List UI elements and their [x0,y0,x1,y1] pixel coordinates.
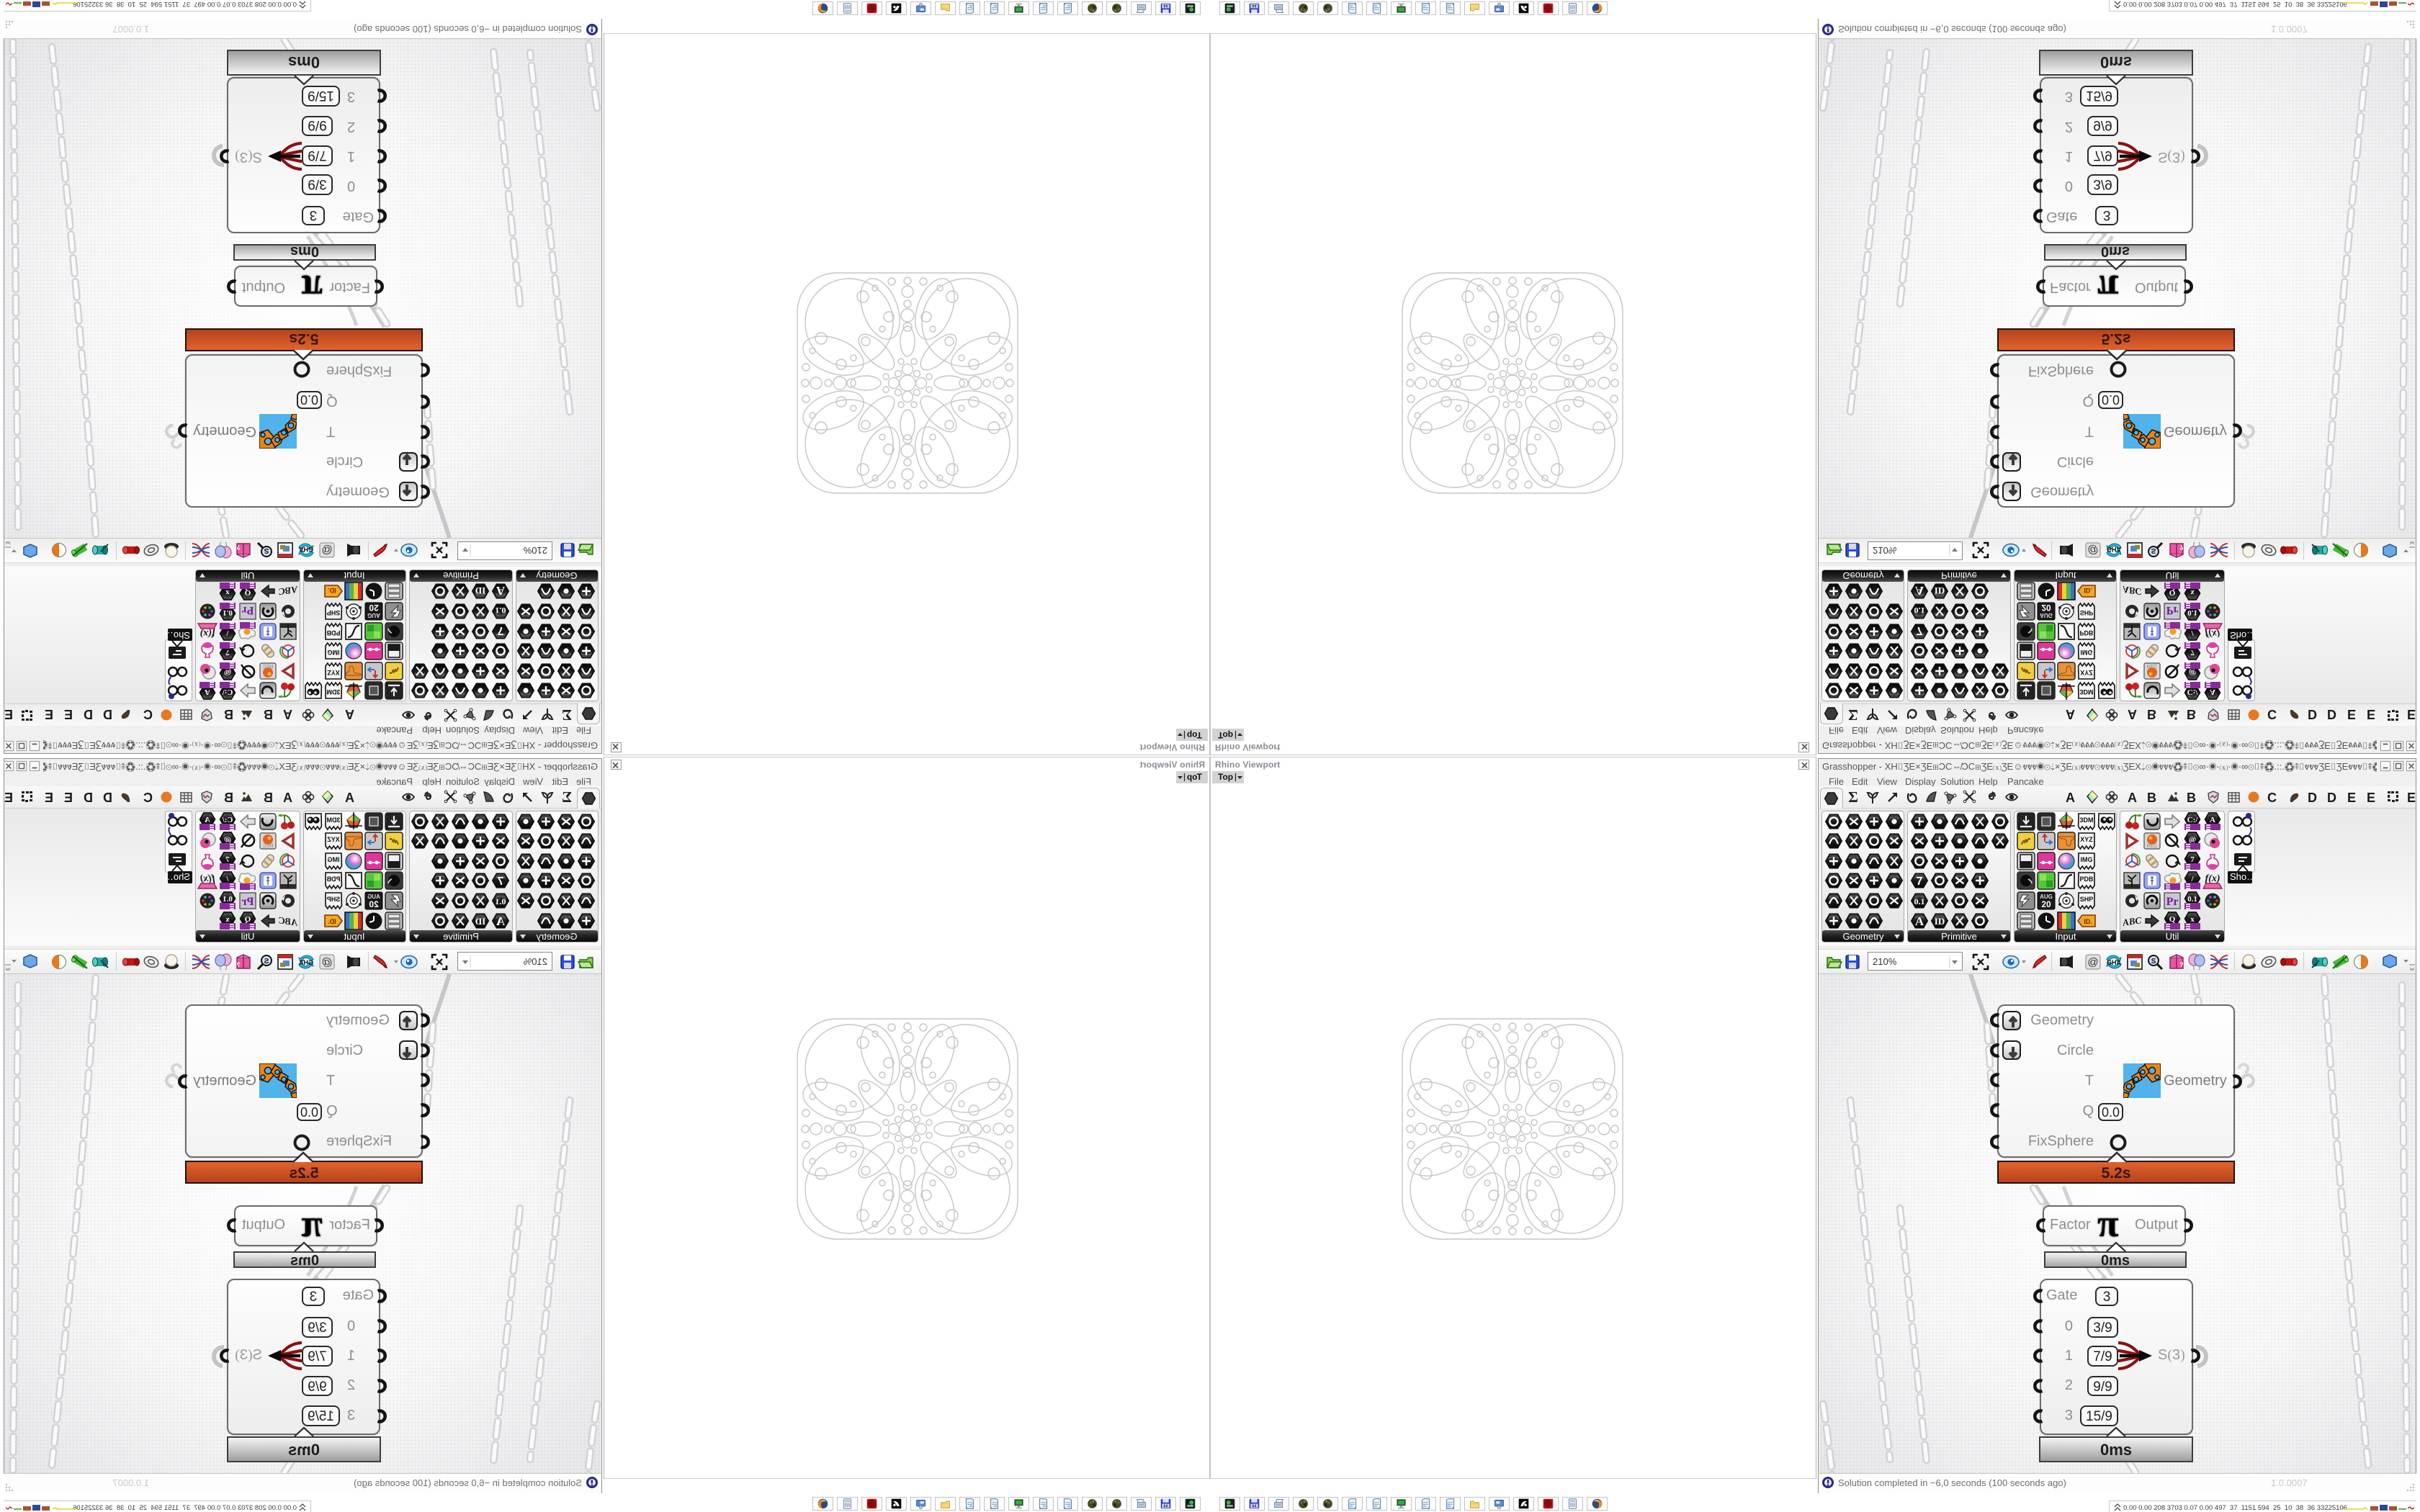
svg-text:A: A [1915,914,1924,928]
svg-text:A: A [1915,584,1924,598]
svg-text:20: 20 [369,899,379,909]
svg-text:64: 64 [1252,3,1257,7]
svg-text:Primitive: Primitive [443,570,479,581]
svg-text:XYZ: XYZ [327,836,340,843]
svg-text:REC: REC [2147,663,2158,668]
svg-text:ID: ID [1935,916,1945,927]
svg-text:@: @ [224,668,231,677]
svg-text:A: A [205,688,210,696]
svg-text:XYZ: XYZ [327,669,340,676]
svg-text:3DM: 3DM [2079,816,2093,824]
svg-text:C:/: C:/ [2187,688,2199,696]
svg-text:Input: Input [2056,931,2076,942]
svg-text:0.1: 0.1 [2187,895,2197,904]
svg-text:Pr: Pr [242,604,254,616]
svg-text:20: 20 [2041,603,2051,613]
svg-text:Util: Util [241,570,255,581]
svg-text:0.1: 0.1 [2187,608,2197,617]
svg-text:0.1: 0.1 [496,896,506,906]
svg-text:Pr: Pr [2166,604,2179,616]
svg-text:ID.: ID. [2084,587,2092,594]
svg-text:ID.: ID. [2084,918,2092,925]
svg-text:REC: REC [263,663,274,668]
svg-text:ID: ID [475,916,485,927]
svg-text:Primitive: Primitive [443,931,479,942]
svg-text:IMG: IMG [2081,856,2093,863]
svg-text:f(x): f(x) [200,628,215,639]
svg-text:A: A [496,914,505,928]
svg-text:Geometry: Geometry [536,570,578,581]
svg-text:C:/: C:/ [222,688,233,696]
svg-text:Input: Input [344,931,364,942]
svg-text:7: 7 [225,648,230,657]
svg-text:Σ: Σ [1848,706,1858,722]
svg-text:SHP: SHP [327,609,341,616]
svg-text:Input: Input [2056,570,2076,581]
svg-text:ID: ID [475,585,485,596]
svg-text:Pr: Pr [242,896,254,908]
svg-text:?: ? [2179,961,2184,968]
svg-text:0.1: 0.1 [1914,896,1925,906]
svg-text:Q: Q [244,588,251,597]
svg-text:Util: Util [2166,931,2179,942]
svg-text:ID.: ID. [328,587,336,594]
svg-text:3DM: 3DM [2079,688,2093,696]
svg-text:@: @ [2087,544,2098,556]
svg-text:20: 20 [2041,899,2051,909]
svg-text:7: 7 [2190,648,2195,657]
svg-text:S: S [264,546,269,554]
svg-text:Input: Input [344,570,364,581]
svg-text:XYZ: XYZ [2080,836,2093,843]
svg-text:64: 64 [1164,1505,1168,1509]
svg-text:0.1: 0.1 [496,606,506,616]
svg-text:ID.: ID. [328,918,336,925]
svg-text:Util: Util [241,931,255,942]
svg-text:7: 7 [225,855,230,864]
svg-text:SHP: SHP [327,896,341,903]
svg-text:@: @ [2189,835,2196,844]
svg-text:f(x): f(x) [2205,873,2220,884]
svg-text:64: 64 [1252,1505,1257,1509]
svg-text:7: 7 [1917,624,1923,636]
svg-text:GHA: GHA [299,959,314,966]
svg-text:A: A [496,584,505,598]
svg-text:IMG: IMG [328,856,340,863]
svg-text:C:/: C:/ [2187,816,2199,824]
svg-text:GHA: GHA [299,546,314,553]
svg-text:A: A [2210,816,2215,824]
svg-text:3DM: 3DM [326,688,340,696]
svg-text:3DM: 3DM [326,816,340,824]
svg-text:7: 7 [1917,876,1923,888]
svg-text:A: A [2210,688,2215,696]
svg-text:SHP: SHP [2080,896,2094,903]
svg-text:A: A [205,816,210,824]
svg-text:Primitive: Primitive [1941,570,1977,581]
svg-text:7: 7 [497,876,503,888]
svg-text:GHA: GHA [2107,959,2122,966]
svg-text:?: ? [237,961,241,968]
svg-text:REC: REC [263,844,274,849]
svg-text:64: 64 [1164,3,1168,7]
svg-text:Geometry: Geometry [1842,931,1884,942]
svg-text:S: S [264,958,269,966]
svg-text:Pr: Pr [2166,896,2179,908]
svg-text:x: x [2190,588,2195,597]
svg-text:C:/: C:/ [222,816,233,824]
svg-text:Geometry: Geometry [536,931,578,942]
svg-text:Geometry: Geometry [1842,570,1884,581]
svg-text:Σ: Σ [562,790,572,806]
svg-text:Q: Q [2169,588,2176,597]
svg-text:7: 7 [2190,855,2195,864]
svg-text:PDB: PDB [326,876,341,883]
svg-text:SHP: SHP [2080,609,2094,616]
svg-text:f(x): f(x) [2205,628,2220,639]
svg-text:@: @ [2087,956,2098,968]
svg-text:XYZ: XYZ [2080,669,2093,676]
svg-text:20: 20 [369,603,379,613]
svg-text:Q: Q [244,915,251,924]
svg-text:S: S [2151,546,2156,554]
svg-text:Q: Q [2169,915,2176,924]
svg-text:?: ? [2179,544,2184,551]
svg-text:@: @ [2189,668,2196,677]
svg-text:Σ: Σ [1848,790,1858,806]
svg-text:PDB: PDB [2079,876,2094,883]
svg-text:S: S [2151,958,2156,966]
svg-text:GHA: GHA [2107,546,2122,553]
svg-text:7: 7 [497,624,503,636]
svg-text:0.1: 0.1 [223,895,233,904]
svg-text:Primitive: Primitive [1941,931,1977,942]
svg-text:Σ: Σ [562,706,572,722]
svg-text:x: x [2190,915,2195,924]
svg-text:@: @ [321,956,332,968]
svg-text:REC: REC [2147,844,2158,849]
svg-text:0.1: 0.1 [1914,606,1925,616]
svg-text:x: x [225,588,230,597]
svg-text:?: ? [237,544,241,551]
svg-text:Util: Util [2166,570,2179,581]
svg-text:IMG: IMG [2081,649,2093,656]
svg-text:@: @ [224,835,231,844]
svg-text:IMG: IMG [328,649,340,656]
svg-text:ID: ID [1935,585,1945,596]
svg-text:0.1: 0.1 [223,608,233,617]
svg-text:x: x [225,915,230,924]
svg-text:PDB: PDB [326,629,341,636]
svg-text:@: @ [321,544,332,556]
svg-text:PDB: PDB [2079,629,2094,636]
svg-text:f(x): f(x) [200,873,215,884]
